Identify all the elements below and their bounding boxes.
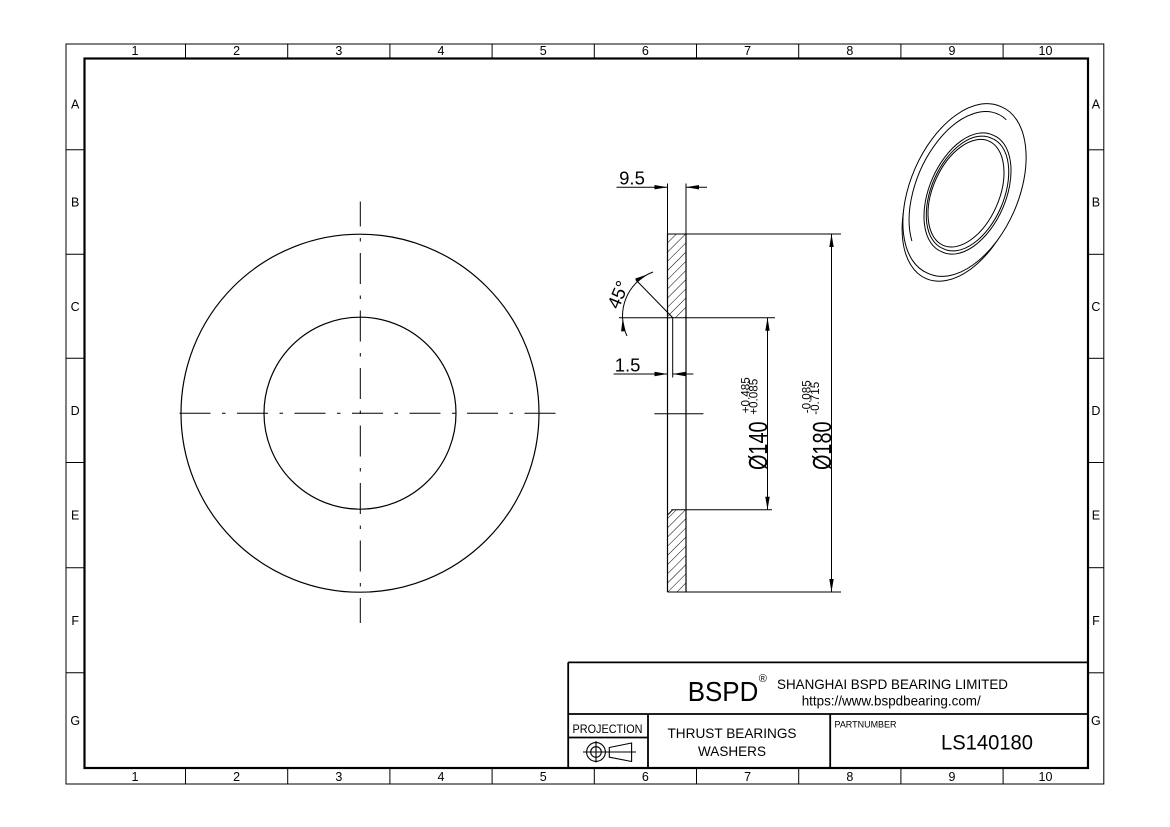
svg-text:F: F (1092, 614, 1100, 628)
svg-text:A: A (1092, 98, 1101, 112)
svg-text:6: 6 (642, 44, 649, 58)
svg-text:7: 7 (744, 44, 751, 58)
svg-text:C: C (71, 300, 80, 314)
svg-text:+0.085: +0.085 (748, 379, 761, 415)
svg-text:®: ® (759, 673, 767, 685)
svg-text:D: D (1091, 404, 1100, 418)
svg-text:2: 2 (233, 44, 240, 58)
svg-text:3: 3 (335, 770, 342, 784)
svg-text:9: 9 (949, 44, 956, 58)
svg-text:8: 8 (846, 44, 853, 58)
svg-text:B: B (1092, 196, 1100, 210)
svg-text:E: E (71, 509, 79, 523)
svg-text:THRUST BEARINGS: THRUST BEARINGS (668, 726, 797, 741)
svg-text:B: B (71, 196, 79, 210)
svg-text:1.5: 1.5 (615, 355, 641, 376)
svg-text:LS140180: LS140180 (941, 732, 1033, 755)
svg-text:Ø140: Ø140 (745, 422, 773, 471)
svg-text:5: 5 (540, 770, 547, 784)
svg-text:1: 1 (132, 44, 139, 58)
svg-text:9.5: 9.5 (619, 168, 645, 189)
svg-text:C: C (1091, 300, 1100, 314)
svg-text:10: 10 (1039, 770, 1053, 784)
svg-text:D: D (71, 404, 80, 418)
svg-text:3: 3 (335, 44, 342, 58)
svg-text:G: G (1091, 714, 1101, 728)
svg-text:SHANGHAI BSPD BEARING LIMITED: SHANGHAI BSPD BEARING LIMITED (777, 676, 1008, 692)
svg-text:https://www.bspdbearing.com/: https://www.bspdbearing.com/ (802, 693, 981, 709)
svg-text:F: F (71, 614, 79, 628)
svg-text:9: 9 (949, 770, 956, 784)
svg-text:4: 4 (438, 770, 445, 784)
svg-text:A: A (71, 98, 80, 112)
svg-text:Ø180: Ø180 (809, 422, 837, 471)
svg-text:10: 10 (1039, 44, 1053, 58)
svg-text:PARTNUMBER: PARTNUMBER (835, 720, 897, 731)
svg-text:E: E (1092, 509, 1100, 523)
svg-text:2: 2 (233, 770, 240, 784)
svg-text:BSPD: BSPD (688, 676, 759, 707)
svg-text:G: G (70, 714, 80, 728)
svg-text:1: 1 (132, 770, 139, 784)
svg-text:7: 7 (744, 770, 751, 784)
svg-text:4: 4 (438, 44, 445, 58)
svg-text:8: 8 (846, 770, 853, 784)
svg-text:5: 5 (540, 44, 547, 58)
svg-text:-0.715: -0.715 (809, 382, 822, 415)
svg-text:PROJECTION: PROJECTION (573, 724, 643, 736)
svg-text:WASHERS: WASHERS (698, 744, 766, 759)
svg-text:6: 6 (642, 770, 649, 784)
